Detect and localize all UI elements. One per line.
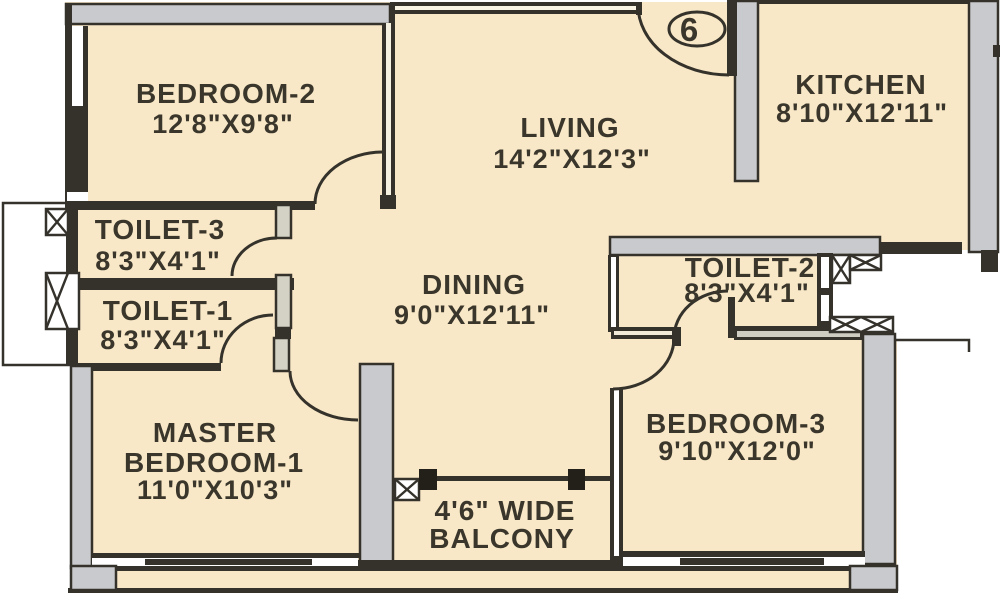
svg-text:12'8"X9'8": 12'8"X9'8": [152, 109, 294, 139]
svg-text:6: 6: [680, 11, 698, 48]
svg-text:11'0"X10'3": 11'0"X10'3": [137, 475, 293, 505]
svg-text:DINING: DINING: [422, 269, 526, 300]
svg-text:9'10"X12'0": 9'10"X12'0": [658, 436, 816, 466]
svg-text:BEDROOM-2: BEDROOM-2: [136, 78, 316, 109]
svg-text:4'6" WIDE: 4'6" WIDE: [435, 495, 576, 526]
svg-text:8'10"X12'11": 8'10"X12'11": [776, 98, 948, 128]
svg-text:8'3"X4'1": 8'3"X4'1": [684, 278, 810, 308]
svg-text:TOILET-3: TOILET-3: [95, 214, 225, 245]
svg-text:BEDROOM-1: BEDROOM-1: [124, 447, 304, 478]
svg-text:BEDROOM-3: BEDROOM-3: [646, 408, 826, 439]
svg-text:KITCHEN: KITCHEN: [795, 69, 926, 100]
svg-text:14'2"X12'3": 14'2"X12'3": [493, 144, 651, 174]
svg-text:9'0"X12'11": 9'0"X12'11": [394, 300, 550, 330]
svg-text:8'3"X4'1": 8'3"X4'1": [95, 246, 221, 276]
svg-text:TOILET-1: TOILET-1: [103, 295, 233, 326]
svg-text:8'3"X4'1": 8'3"X4'1": [100, 325, 226, 355]
svg-text:BALCONY: BALCONY: [429, 523, 574, 554]
svg-text:MASTER: MASTER: [153, 417, 277, 448]
svg-text:LIVING: LIVING: [520, 112, 619, 143]
